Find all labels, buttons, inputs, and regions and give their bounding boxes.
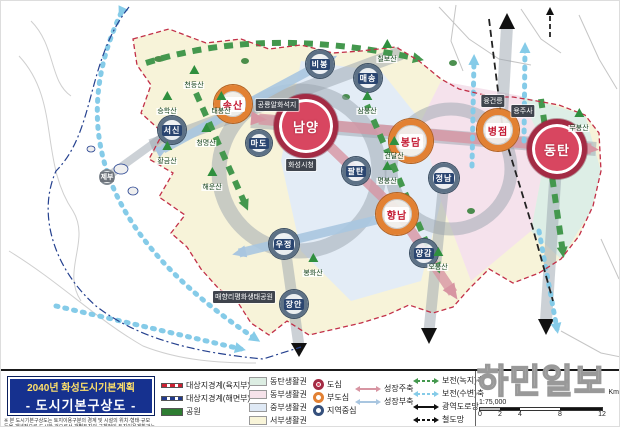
legend-label: 동탄생활권 bbox=[270, 376, 307, 387]
regional-center-label: 마도 bbox=[249, 138, 270, 149]
legend-item-railway: 철도망 bbox=[413, 414, 484, 425]
legend-label: 보전(녹지)축 bbox=[442, 375, 484, 386]
legend-item-growth-main: 성장주축 bbox=[355, 383, 413, 394]
mountain-label: 삼봉산 bbox=[356, 108, 377, 115]
regional-center-label: 장안 bbox=[284, 299, 305, 310]
legend-item-core: 도심 bbox=[313, 379, 356, 390]
legend-item-green-axis: 보전(녹지)축 bbox=[413, 375, 484, 386]
mountain-cheongmyeongsan: 청명산 bbox=[195, 123, 216, 149]
legend-label: 성장주축 bbox=[384, 383, 413, 394]
mountain-label: 무봉산 bbox=[568, 125, 589, 132]
zone-swatch bbox=[249, 403, 267, 412]
mountain-sambongsan: 삼봉산 bbox=[356, 91, 377, 117]
scale-segment bbox=[500, 408, 520, 410]
legend-col-centers: 도심 부도심 지역중심 bbox=[313, 379, 356, 418]
scale-ticks: 0 2 4 8 12 bbox=[479, 411, 615, 419]
regional-circle-swatch bbox=[313, 405, 324, 416]
scale-unit: Km bbox=[609, 389, 620, 396]
regional-center-label: 정남 bbox=[434, 173, 455, 184]
green-dashed-arrow-icon bbox=[413, 377, 439, 385]
regional-center-mado: 마도 bbox=[246, 130, 272, 156]
legend-label: 서부생활권 bbox=[270, 415, 307, 426]
legend-item-regional: 지역중심 bbox=[313, 405, 356, 416]
black-arrow-icon bbox=[413, 403, 439, 411]
mountain-label: 칠보산 bbox=[376, 56, 397, 63]
legend-label: 부도심 bbox=[327, 392, 349, 403]
scale-tick: 0 bbox=[478, 411, 482, 418]
subcenter-circle-swatch bbox=[313, 392, 324, 403]
mountain-icon bbox=[162, 141, 172, 150]
legend-label: 광역도로망 bbox=[442, 401, 479, 412]
regional-center-label: 서신 bbox=[162, 125, 183, 136]
mountain-label: 봉화산 bbox=[302, 270, 323, 277]
mountain-icon bbox=[362, 91, 372, 100]
mountain-icon bbox=[207, 167, 217, 176]
legend-item-water-axis: 보전(수변)축 bbox=[413, 388, 484, 399]
mountain-mubongsan: 무봉산 bbox=[568, 108, 589, 134]
scale-ratio: 1:75,000 bbox=[479, 399, 615, 406]
legend-item-zone-east: 동부생활권 bbox=[249, 389, 307, 400]
mountain-icon bbox=[201, 123, 211, 132]
legend-label: 지역중심 bbox=[327, 405, 356, 416]
legend-item-expressway: 광역도로망 bbox=[413, 401, 484, 412]
mountain-hwanggeumsan: 황금산 bbox=[156, 141, 177, 167]
subcenter-hyangnam: 향남 bbox=[376, 193, 418, 235]
mountain-label: 청명산 bbox=[195, 140, 216, 147]
legend-label: 대상지경계(해면부) bbox=[186, 393, 250, 404]
mountain-cheondeungsan: 천등산 bbox=[183, 65, 204, 91]
green-fill-swatch bbox=[161, 408, 183, 416]
regional-center-label: 우정 bbox=[274, 239, 295, 250]
regional-center-label: 팔탄 bbox=[346, 166, 367, 177]
mountain-label: 승학산 bbox=[156, 108, 177, 115]
legend-item-park: 공원 bbox=[161, 406, 250, 417]
regional-center-label: 매송 bbox=[358, 73, 379, 84]
mountain-icon bbox=[574, 108, 584, 117]
legend-col-growth-axes: 성장주축 성장부축 bbox=[355, 383, 413, 409]
mountain-label: 오봉산 bbox=[427, 264, 448, 271]
island-jebu: 제부 bbox=[99, 169, 115, 185]
map-subtitle: - 도시기본구상도 - bbox=[26, 395, 137, 414]
legend-band: 2040년 화성도시기본계획 - 도시기본구상도 - ※ 본 도시기본구상도는 … bbox=[1, 369, 620, 427]
disclaimer-text: ※ 본 도시기본구상도는 토지이용구분의 경계 및 시설의 위치·형태·규모 등… bbox=[4, 418, 156, 427]
scale-tick: 4 bbox=[518, 411, 522, 418]
subcenter-label: 병점 bbox=[486, 123, 510, 138]
mountain-geondalsan: 건달산 bbox=[383, 136, 404, 162]
landmark-dinosaur-fossil-site: 공룡알화석지 bbox=[256, 99, 299, 111]
regional-center-maesong: 매송 bbox=[354, 64, 382, 92]
regional-center-paltan: 팔탄 bbox=[342, 157, 370, 185]
map-figure: 남양 동탄 송산 봉담 병점 향남 서신 마도 팔탄 정남 양감 우정 장안 비… bbox=[0, 0, 620, 427]
legend-col-networks: 보전(녹지)축 보전(수변)축 광역도로망 철도망 bbox=[413, 375, 484, 427]
mountain-label: 황금산 bbox=[156, 158, 177, 165]
legend-label: 도심 bbox=[327, 379, 342, 390]
mountain-taebongsan: 태봉산 bbox=[210, 91, 231, 117]
regional-center-label: 비봉 bbox=[310, 59, 331, 70]
mountain-label: 천등산 bbox=[183, 82, 204, 89]
landmark-maehyangri-eco-park: 매향리평화생태공원 bbox=[213, 291, 275, 303]
zone-swatch bbox=[249, 377, 267, 386]
mountain-icon bbox=[308, 253, 318, 262]
legend-label: 대상지경계(육지부) bbox=[186, 380, 250, 391]
legend-col-boundaries: 대상지경계(육지부) 대상지경계(해면부) 공원 bbox=[161, 380, 250, 419]
scale-tick: 8 bbox=[558, 411, 562, 418]
legend-label: 동부생활권 bbox=[270, 389, 307, 400]
legend-label: 보전(수변)축 bbox=[442, 388, 484, 399]
mountain-icon bbox=[189, 65, 199, 74]
mountain-icon bbox=[216, 91, 226, 100]
subcenter-label: 향남 bbox=[385, 207, 409, 222]
mountain-bonghwasan: 봉화산 bbox=[302, 253, 323, 279]
title-box: 2040년 화성도시기본계획 - 도시기본구상도 - bbox=[7, 376, 155, 416]
zone-swatch bbox=[249, 390, 267, 399]
landmark-yunggeolleung: 융건릉 bbox=[481, 95, 504, 107]
mountain-haeunsan: 해운산 bbox=[201, 167, 222, 193]
core-circle-swatch bbox=[313, 379, 324, 390]
scale-segment bbox=[560, 408, 602, 410]
legend-label: 중부생활권 bbox=[270, 402, 307, 413]
landmark-yongjusa: 용주사 bbox=[511, 105, 534, 117]
legend-label: 철도망 bbox=[442, 414, 464, 425]
legend-item-zone-central: 중부생활권 bbox=[249, 402, 307, 413]
landmark-city-hall: 화성시청 bbox=[286, 159, 316, 171]
legend-divider bbox=[475, 371, 476, 427]
black-dashed-arrow-icon bbox=[413, 416, 439, 424]
regional-center-bibong: 비봉 bbox=[306, 50, 334, 78]
regional-center-seosin: 서신 bbox=[158, 116, 186, 144]
legend-label: 성장부축 bbox=[384, 396, 413, 407]
mountain-label: 건달산 bbox=[383, 153, 404, 160]
regional-center-jangan: 장안 bbox=[280, 290, 308, 318]
mountain-icon bbox=[382, 161, 392, 170]
scale-bar: 1:75,000 Km 0 2 4 8 12 bbox=[479, 399, 615, 419]
pink-arrow-icon bbox=[355, 385, 381, 393]
city-center-label: 남양 bbox=[293, 117, 319, 136]
city-center-label: 동탄 bbox=[544, 140, 570, 159]
mountain-myeongbongsan: 명봉산 bbox=[376, 161, 397, 187]
legend-label: 공원 bbox=[186, 406, 201, 417]
regional-center-jeongnam: 정남 bbox=[429, 163, 459, 193]
mountain-chilbosan: 칠보산 bbox=[376, 39, 397, 65]
red-dashed-swatch bbox=[161, 383, 183, 388]
legend-item-zone-west: 서부생활권 bbox=[249, 415, 307, 426]
mountain-label: 태봉산 bbox=[210, 108, 231, 115]
mountain-obongsan: 오봉산 bbox=[427, 247, 448, 273]
zone-swatch bbox=[249, 416, 267, 425]
island-label: 제부 bbox=[100, 172, 115, 182]
skyblue-dashed-arrow-icon bbox=[413, 390, 439, 398]
mountain-label: 명봉산 bbox=[376, 178, 397, 185]
scale-tick: 2 bbox=[498, 411, 502, 418]
scale-segment bbox=[520, 408, 560, 410]
blue-dashed-swatch bbox=[161, 396, 183, 401]
mountain-icon bbox=[389, 136, 399, 145]
legend-item-growth-sub: 성장부축 bbox=[355, 396, 413, 407]
mountain-seunghaksan: 승학산 bbox=[156, 91, 177, 117]
mountain-icon bbox=[433, 247, 443, 256]
mountain-label: 해운산 bbox=[201, 184, 222, 191]
legend-item-land-boundary: 대상지경계(육지부) bbox=[161, 380, 250, 391]
scale-segment bbox=[480, 408, 500, 410]
plan-title: 2040년 화성도시기본계획 bbox=[27, 379, 135, 394]
scale-tick: 12 bbox=[598, 411, 606, 418]
regional-center-ujeong: 우정 bbox=[269, 229, 299, 259]
mountain-icon bbox=[162, 91, 172, 100]
legend-item-subcenter: 부도심 bbox=[313, 392, 356, 403]
legend-col-zones: 동탄생활권 동부생활권 중부생활권 서부생활권 bbox=[249, 376, 307, 427]
blue-arrow-icon bbox=[355, 398, 381, 406]
mountain-icon bbox=[382, 39, 392, 48]
map-canvas: 남양 동탄 송산 봉담 병점 향남 서신 마도 팔탄 정남 양감 우정 장안 비… bbox=[1, 1, 620, 369]
legend-item-zone-dongtan: 동탄생활권 bbox=[249, 376, 307, 387]
legend-item-sea-boundary: 대상지경계(해면부) bbox=[161, 393, 250, 404]
